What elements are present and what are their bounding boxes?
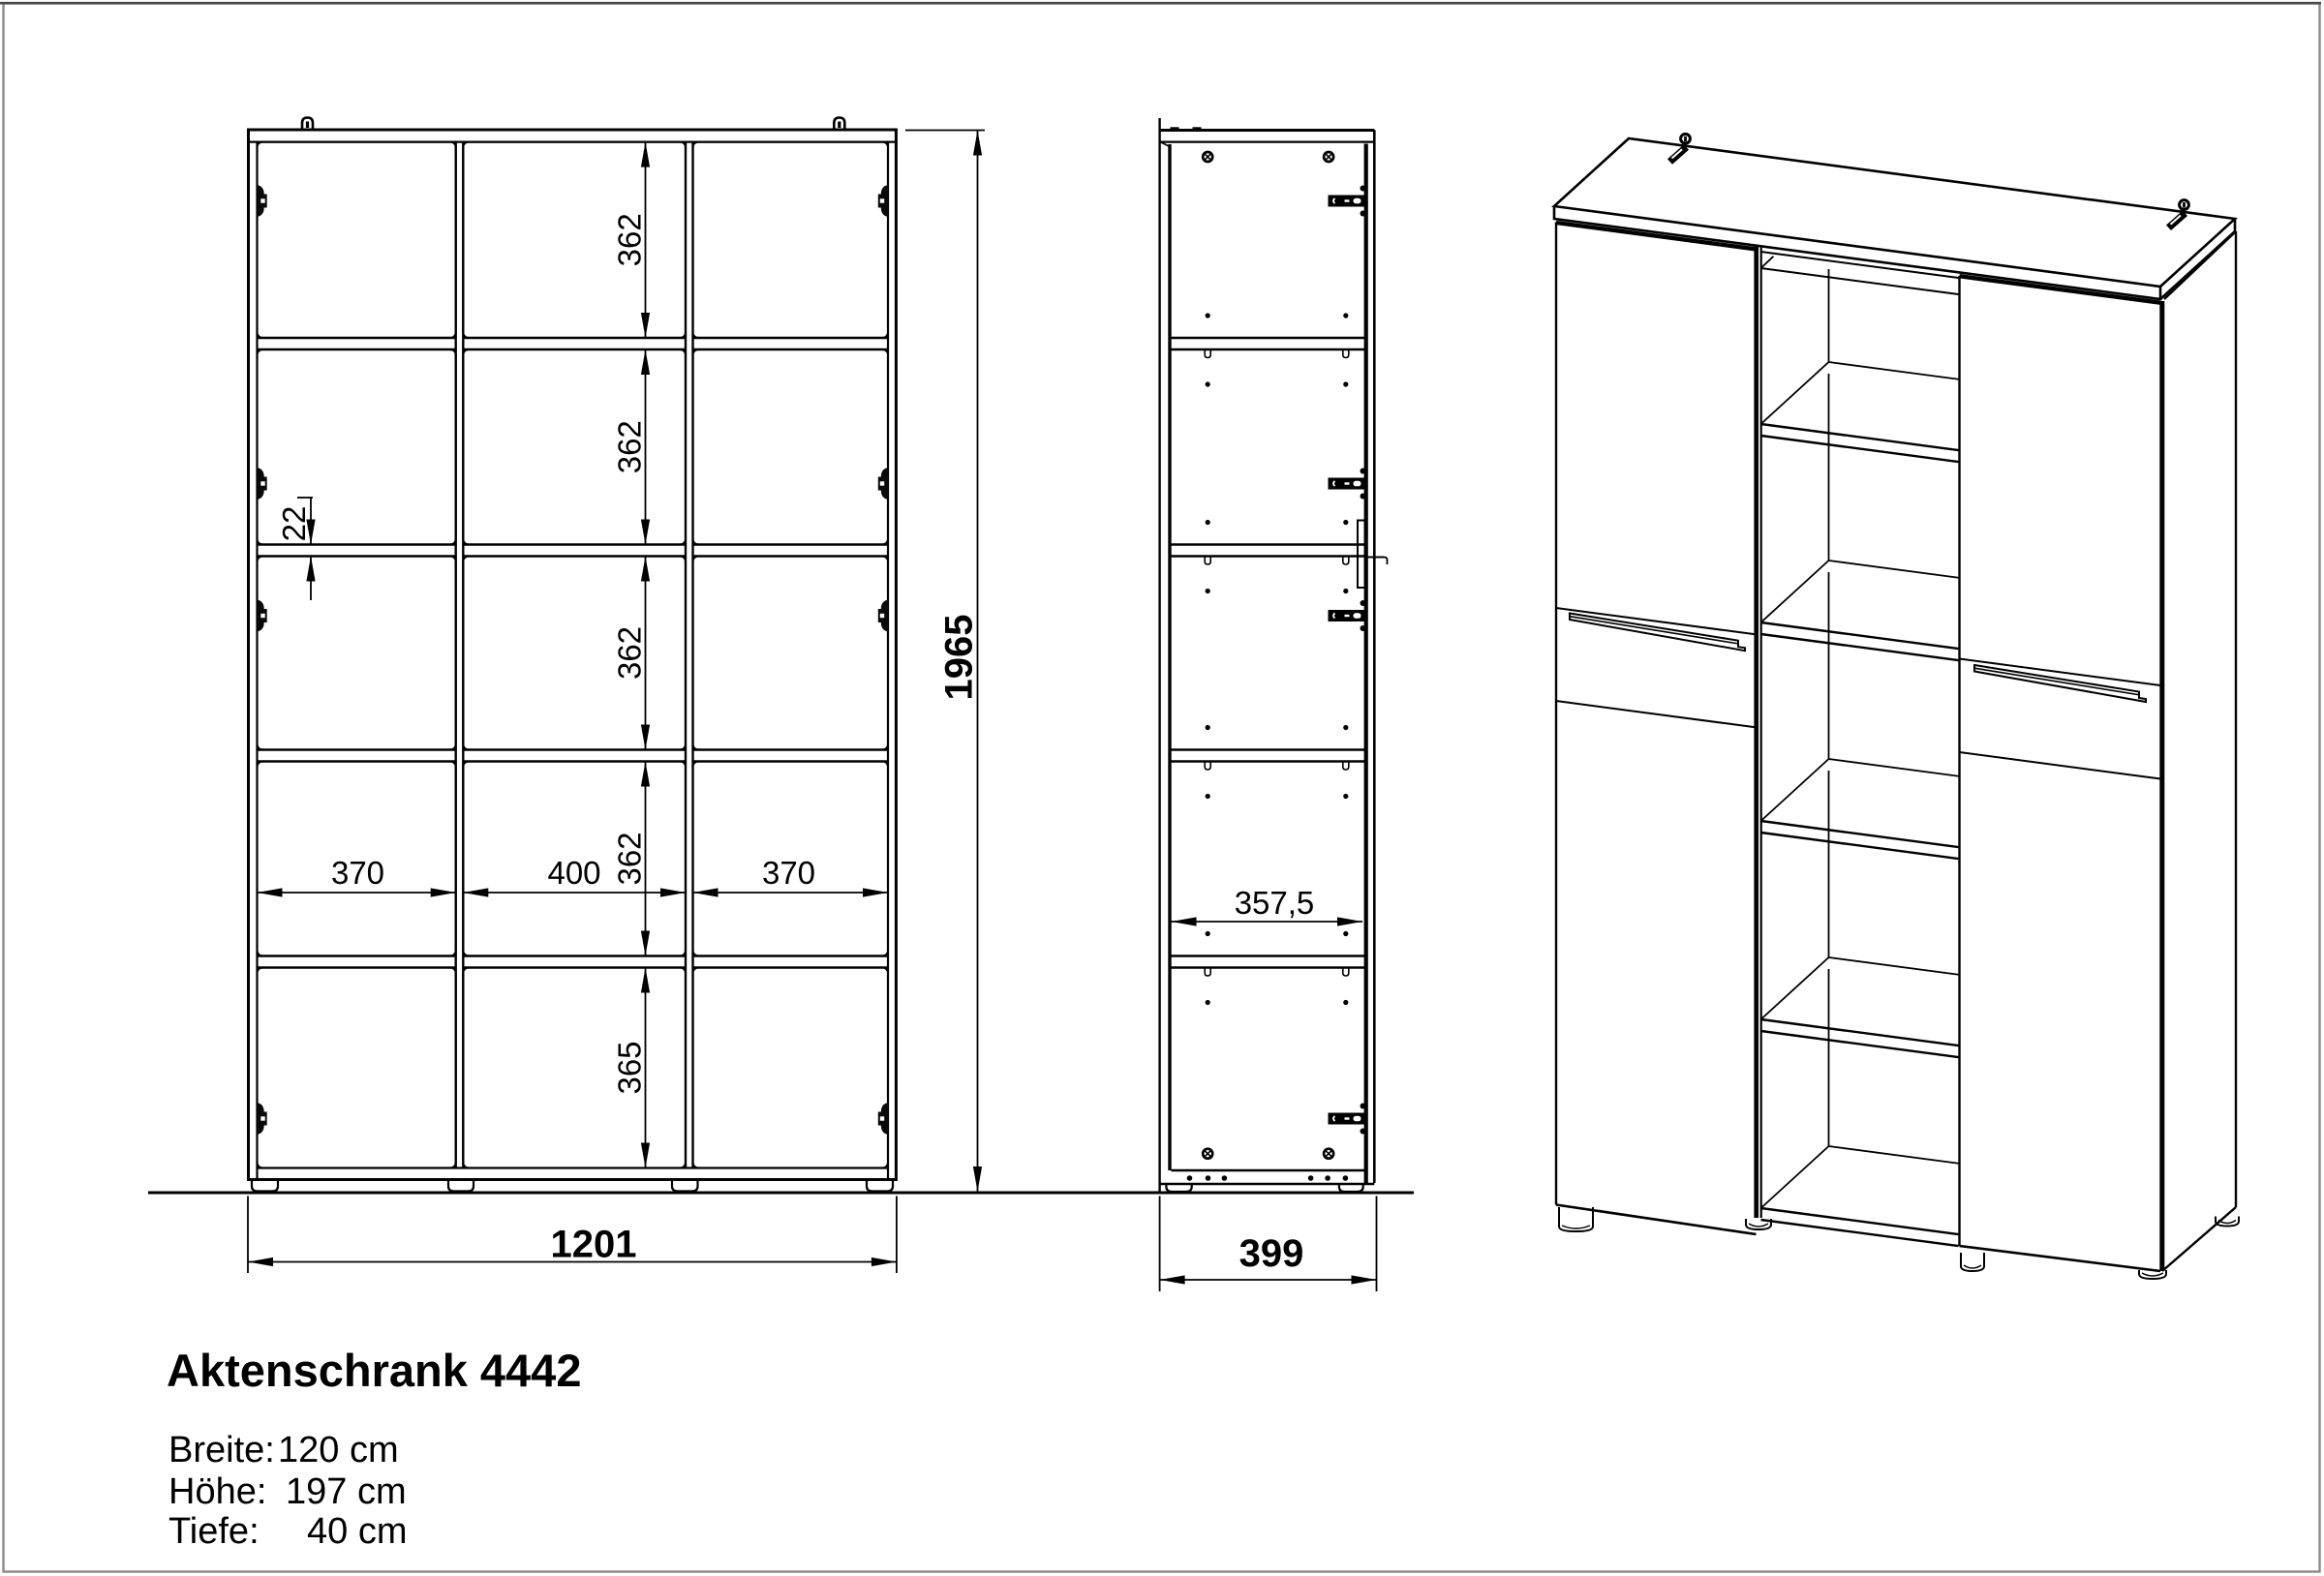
svg-text:362: 362	[611, 626, 647, 680]
svg-text:Aktenschrank 4442: Aktenschrank 4442	[167, 1345, 581, 1396]
svg-text:370: 370	[762, 855, 815, 891]
svg-text:1201: 1201	[551, 1224, 637, 1266]
svg-text:362: 362	[611, 420, 647, 473]
svg-text:Höhe:197 cm: Höhe:197 cm	[168, 1471, 407, 1512]
svg-text:370: 370	[331, 855, 384, 891]
svg-text:22: 22	[276, 506, 312, 542]
svg-text:400: 400	[547, 855, 600, 891]
svg-text:399: 399	[1239, 1232, 1304, 1275]
svg-text:362: 362	[611, 832, 647, 885]
svg-text:365: 365	[611, 1041, 647, 1094]
svg-text:362: 362	[611, 213, 647, 266]
svg-text:Breite:120 cm: Breite:120 cm	[168, 1430, 399, 1470]
svg-text:357,5: 357,5	[1235, 885, 1315, 921]
svg-text:1965: 1965	[938, 615, 981, 701]
